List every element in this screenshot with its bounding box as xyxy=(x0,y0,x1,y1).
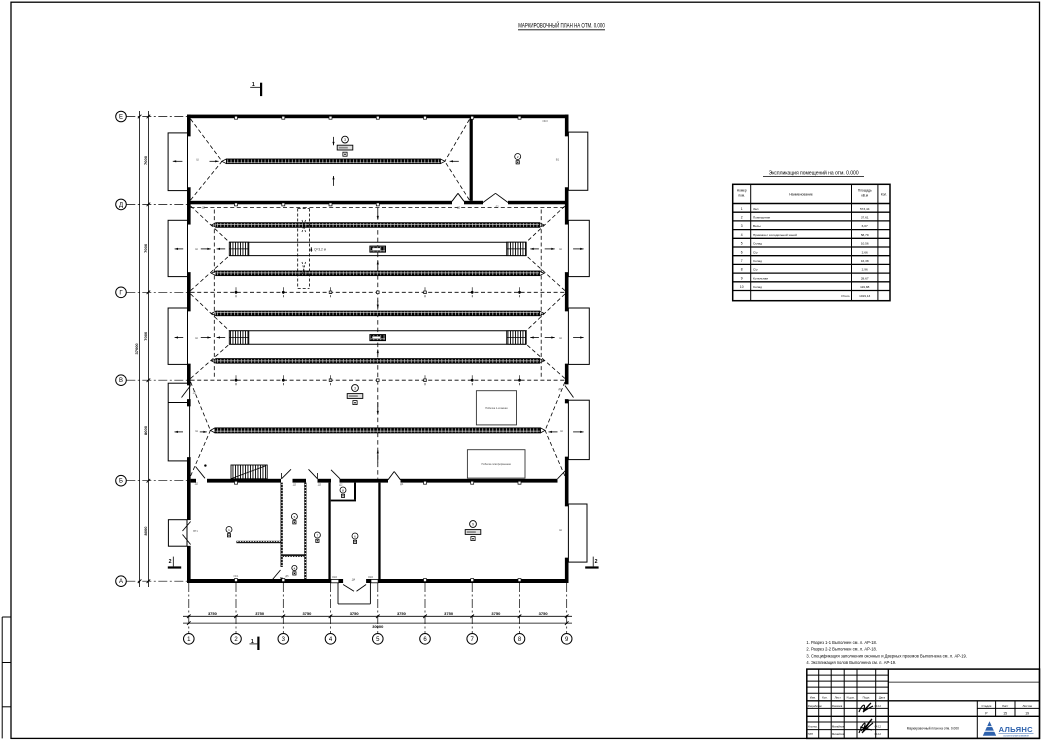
svg-text:37,61: 37,61 xyxy=(861,216,869,220)
svg-text:3750: 3750 xyxy=(444,611,454,616)
svg-text:2,96: 2,96 xyxy=(862,268,868,272)
svg-text:Весы: Весы xyxy=(753,224,761,228)
svg-text:Помещение: Помещение xyxy=(753,216,770,220)
svg-text:3750: 3750 xyxy=(350,611,360,616)
svg-text:Михайлов: Михайлов xyxy=(832,725,845,729)
svg-text:Д3: Д3 xyxy=(495,204,499,208)
svg-text:Д1: Д1 xyxy=(193,391,197,395)
svg-text:Д2: Д2 xyxy=(202,205,206,209)
svg-text:04.12: 04.12 xyxy=(875,726,882,729)
svg-text:58,79: 58,79 xyxy=(861,233,869,237)
svg-text:Листов: Листов xyxy=(1022,704,1032,708)
svg-text:А: А xyxy=(119,579,123,585)
svg-text:Д4: Д4 xyxy=(352,578,356,582)
svg-text:3: 3 xyxy=(741,224,743,228)
svg-text:8000: 8000 xyxy=(143,526,148,536)
svg-text:2: 2 xyxy=(169,559,172,565)
svg-text:Д: Д xyxy=(119,202,123,208)
svg-text:ОК2: ОК2 xyxy=(368,575,374,579)
svg-text:Ш: Ш xyxy=(559,247,562,251)
svg-text:Кол.: Кол. xyxy=(822,696,828,700)
svg-text:Площадь: Площадь xyxy=(858,189,872,193)
svg-text:С/у: С/у xyxy=(753,250,758,254)
svg-text:ОК3: ОК3 xyxy=(542,119,548,123)
svg-text:04.12: 04.12 xyxy=(875,733,882,736)
svg-text:Д2: Д2 xyxy=(457,205,461,209)
svg-text:3750: 3750 xyxy=(255,611,265,616)
svg-text:АЛЬЯНС: АЛЬЯНС xyxy=(999,725,1034,734)
svg-text:3. Спецификация заполнения око: 3. Спецификация заполнения оконных и Две… xyxy=(806,653,967,658)
svg-text:Ш: Ш xyxy=(559,528,562,532)
svg-text:Побелка платформенная: Побелка платформенная xyxy=(482,463,512,466)
svg-text:7: 7 xyxy=(741,259,743,263)
svg-text:6,07: 6,07 xyxy=(862,224,868,228)
svg-text:Лист: Лист xyxy=(1002,704,1009,708)
svg-text:Д3: Д3 xyxy=(293,482,297,486)
svg-text:пом.: пом. xyxy=(738,194,745,198)
svg-text:Подп.: Подп. xyxy=(863,696,871,700)
svg-text:Ш: Ш xyxy=(196,158,199,162)
svg-text:Ш: Ш xyxy=(196,429,199,433)
svg-text:4. Экспликация полов Выполнена: 4. Экспликация полов Выполнена см. л. АР… xyxy=(806,660,896,665)
svg-text:9: 9 xyxy=(741,276,743,280)
svg-text:Ш: Ш xyxy=(195,247,198,251)
svg-text:3750: 3750 xyxy=(397,611,407,616)
svg-text:Е: Е xyxy=(119,115,123,121)
svg-text:2: 2 xyxy=(741,216,743,220)
svg-text:Разработал: Разработал xyxy=(808,704,823,708)
svg-text:Д1: Д1 xyxy=(558,387,562,391)
svg-text:Дата: Дата xyxy=(879,696,886,700)
svg-text:В1: В1 xyxy=(556,157,560,161)
svg-text:1: 1 xyxy=(251,639,254,645)
svg-text:2: 2 xyxy=(595,559,598,565)
svg-text:10,56: 10,56 xyxy=(861,242,869,246)
svg-text:ОК1: ОК1 xyxy=(233,574,239,578)
svg-text:Ремизов: Ремизов xyxy=(832,704,843,708)
svg-text:Наименование: Наименование xyxy=(789,192,813,196)
svg-text:Экспликация помещений на отм.: Экспликация помещений на отм. 0.000 xyxy=(769,169,859,177)
svg-text:3750: 3750 xyxy=(491,611,501,616)
svg-text:строительная компания: строительная компания xyxy=(1003,736,1029,738)
svg-text:9: 9 xyxy=(472,522,474,526)
svg-text:7000: 7000 xyxy=(143,155,148,165)
svg-text:5: 5 xyxy=(741,242,743,246)
svg-text:37000: 37000 xyxy=(134,343,139,355)
svg-text:28,67: 28,67 xyxy=(861,276,869,280)
svg-text:10: 10 xyxy=(740,285,744,289)
svg-text:Склад: Склад xyxy=(753,242,762,246)
svg-text:4: 4 xyxy=(741,233,743,237)
svg-text:04.12: 04.12 xyxy=(875,705,882,708)
svg-text:19: 19 xyxy=(1025,711,1029,715)
svg-text:ОК2: ОК2 xyxy=(332,575,338,579)
svg-text:Д4: Д4 xyxy=(400,482,404,486)
svg-text:3: 3 xyxy=(344,138,346,142)
svg-text:Ш: Ш xyxy=(559,336,562,340)
svg-text:1019,13: 1019,13 xyxy=(859,294,870,298)
svg-text:3750: 3750 xyxy=(302,611,312,616)
svg-text:N док.: N док. xyxy=(847,696,855,700)
svg-text:119,88: 119,88 xyxy=(860,285,870,289)
svg-text:Б: Б xyxy=(119,479,123,485)
svg-text:ГИП: ГИП xyxy=(808,732,813,736)
svg-text:МАРКИРОВОЧНЫЙ ПЛАН НА ОТМ. 0.0: МАРКИРОВОЧНЫЙ ПЛАН НА ОТМ. 0.000 xyxy=(518,21,605,30)
svg-text:1: 1 xyxy=(252,82,255,88)
svg-text:Склад: Склад xyxy=(753,259,762,263)
svg-text:3: 3 xyxy=(354,386,356,390)
svg-text:Д5: Д5 xyxy=(285,574,289,578)
svg-text:ВТ1: ВТ1 xyxy=(193,529,198,533)
svg-text:Ш: Ш xyxy=(560,429,563,433)
svg-text:Лист: Лист xyxy=(835,696,842,700)
svg-text:2. Разрез 2-2 Выполнен см. л.: 2. Разрез 2-2 Выполнен см. л. АР-18. xyxy=(806,647,877,652)
svg-text:8: 8 xyxy=(741,268,743,272)
svg-text:Зал: Зал xyxy=(753,207,759,211)
svg-text:6: 6 xyxy=(741,250,743,254)
svg-text:Ш: Ш xyxy=(195,336,198,340)
svg-text:кВ.м: кВ.м xyxy=(861,194,868,198)
svg-text:30000: 30000 xyxy=(372,624,384,629)
svg-text:Д3: Д3 xyxy=(318,482,322,486)
svg-text:Стадия: Стадия xyxy=(981,704,991,708)
svg-text:Номер: Номер xyxy=(737,189,747,193)
svg-text:7000: 7000 xyxy=(143,331,148,341)
svg-text:Михайлов: Михайлов xyxy=(832,732,845,736)
svg-text:Изм.: Изм. xyxy=(810,696,816,700)
svg-text:Маркировочный план на отм. 0.0: Маркировочный план на отм. 0.000 xyxy=(907,726,959,730)
svg-text:Склад: Склад xyxy=(753,285,762,289)
svg-text:Н.контр.: Н.контр. xyxy=(808,725,818,729)
svg-text:Д2: Д2 xyxy=(339,482,343,486)
svg-text:В: В xyxy=(119,378,123,384)
svg-text:3750: 3750 xyxy=(539,611,549,616)
svg-text:Итого: Итого xyxy=(841,294,849,298)
svg-text:Котельная: Котельная xyxy=(753,276,768,280)
svg-text:8000: 8000 xyxy=(143,425,148,435)
svg-text:3750: 3750 xyxy=(208,611,218,616)
svg-text:16,38: 16,38 xyxy=(861,259,869,263)
svg-text:Побелка 1-этажная: Побелка 1-этажная xyxy=(485,407,508,410)
svg-text:7000: 7000 xyxy=(143,243,148,253)
svg-text:1: 1 xyxy=(741,207,743,211)
svg-text:С/у: С/у xyxy=(753,268,758,272)
svg-text:Д2: Д2 xyxy=(195,482,199,486)
svg-text:573,44: 573,44 xyxy=(860,207,870,211)
svg-text:1. Разрез 1-1 Выполнен см. л.: 1. Разрез 1-1 Выполнен см. л. АР-18. xyxy=(806,640,877,645)
svg-text:15: 15 xyxy=(1003,711,1007,715)
svg-text:Приемка с холодильной зоной: Приемка с холодильной зоной xyxy=(753,233,797,237)
svg-text:Q=3,2 м: Q=3,2 м xyxy=(314,248,326,252)
svg-text:Кол.: Кол. xyxy=(881,192,887,196)
svg-text:2,66: 2,66 xyxy=(862,250,868,254)
